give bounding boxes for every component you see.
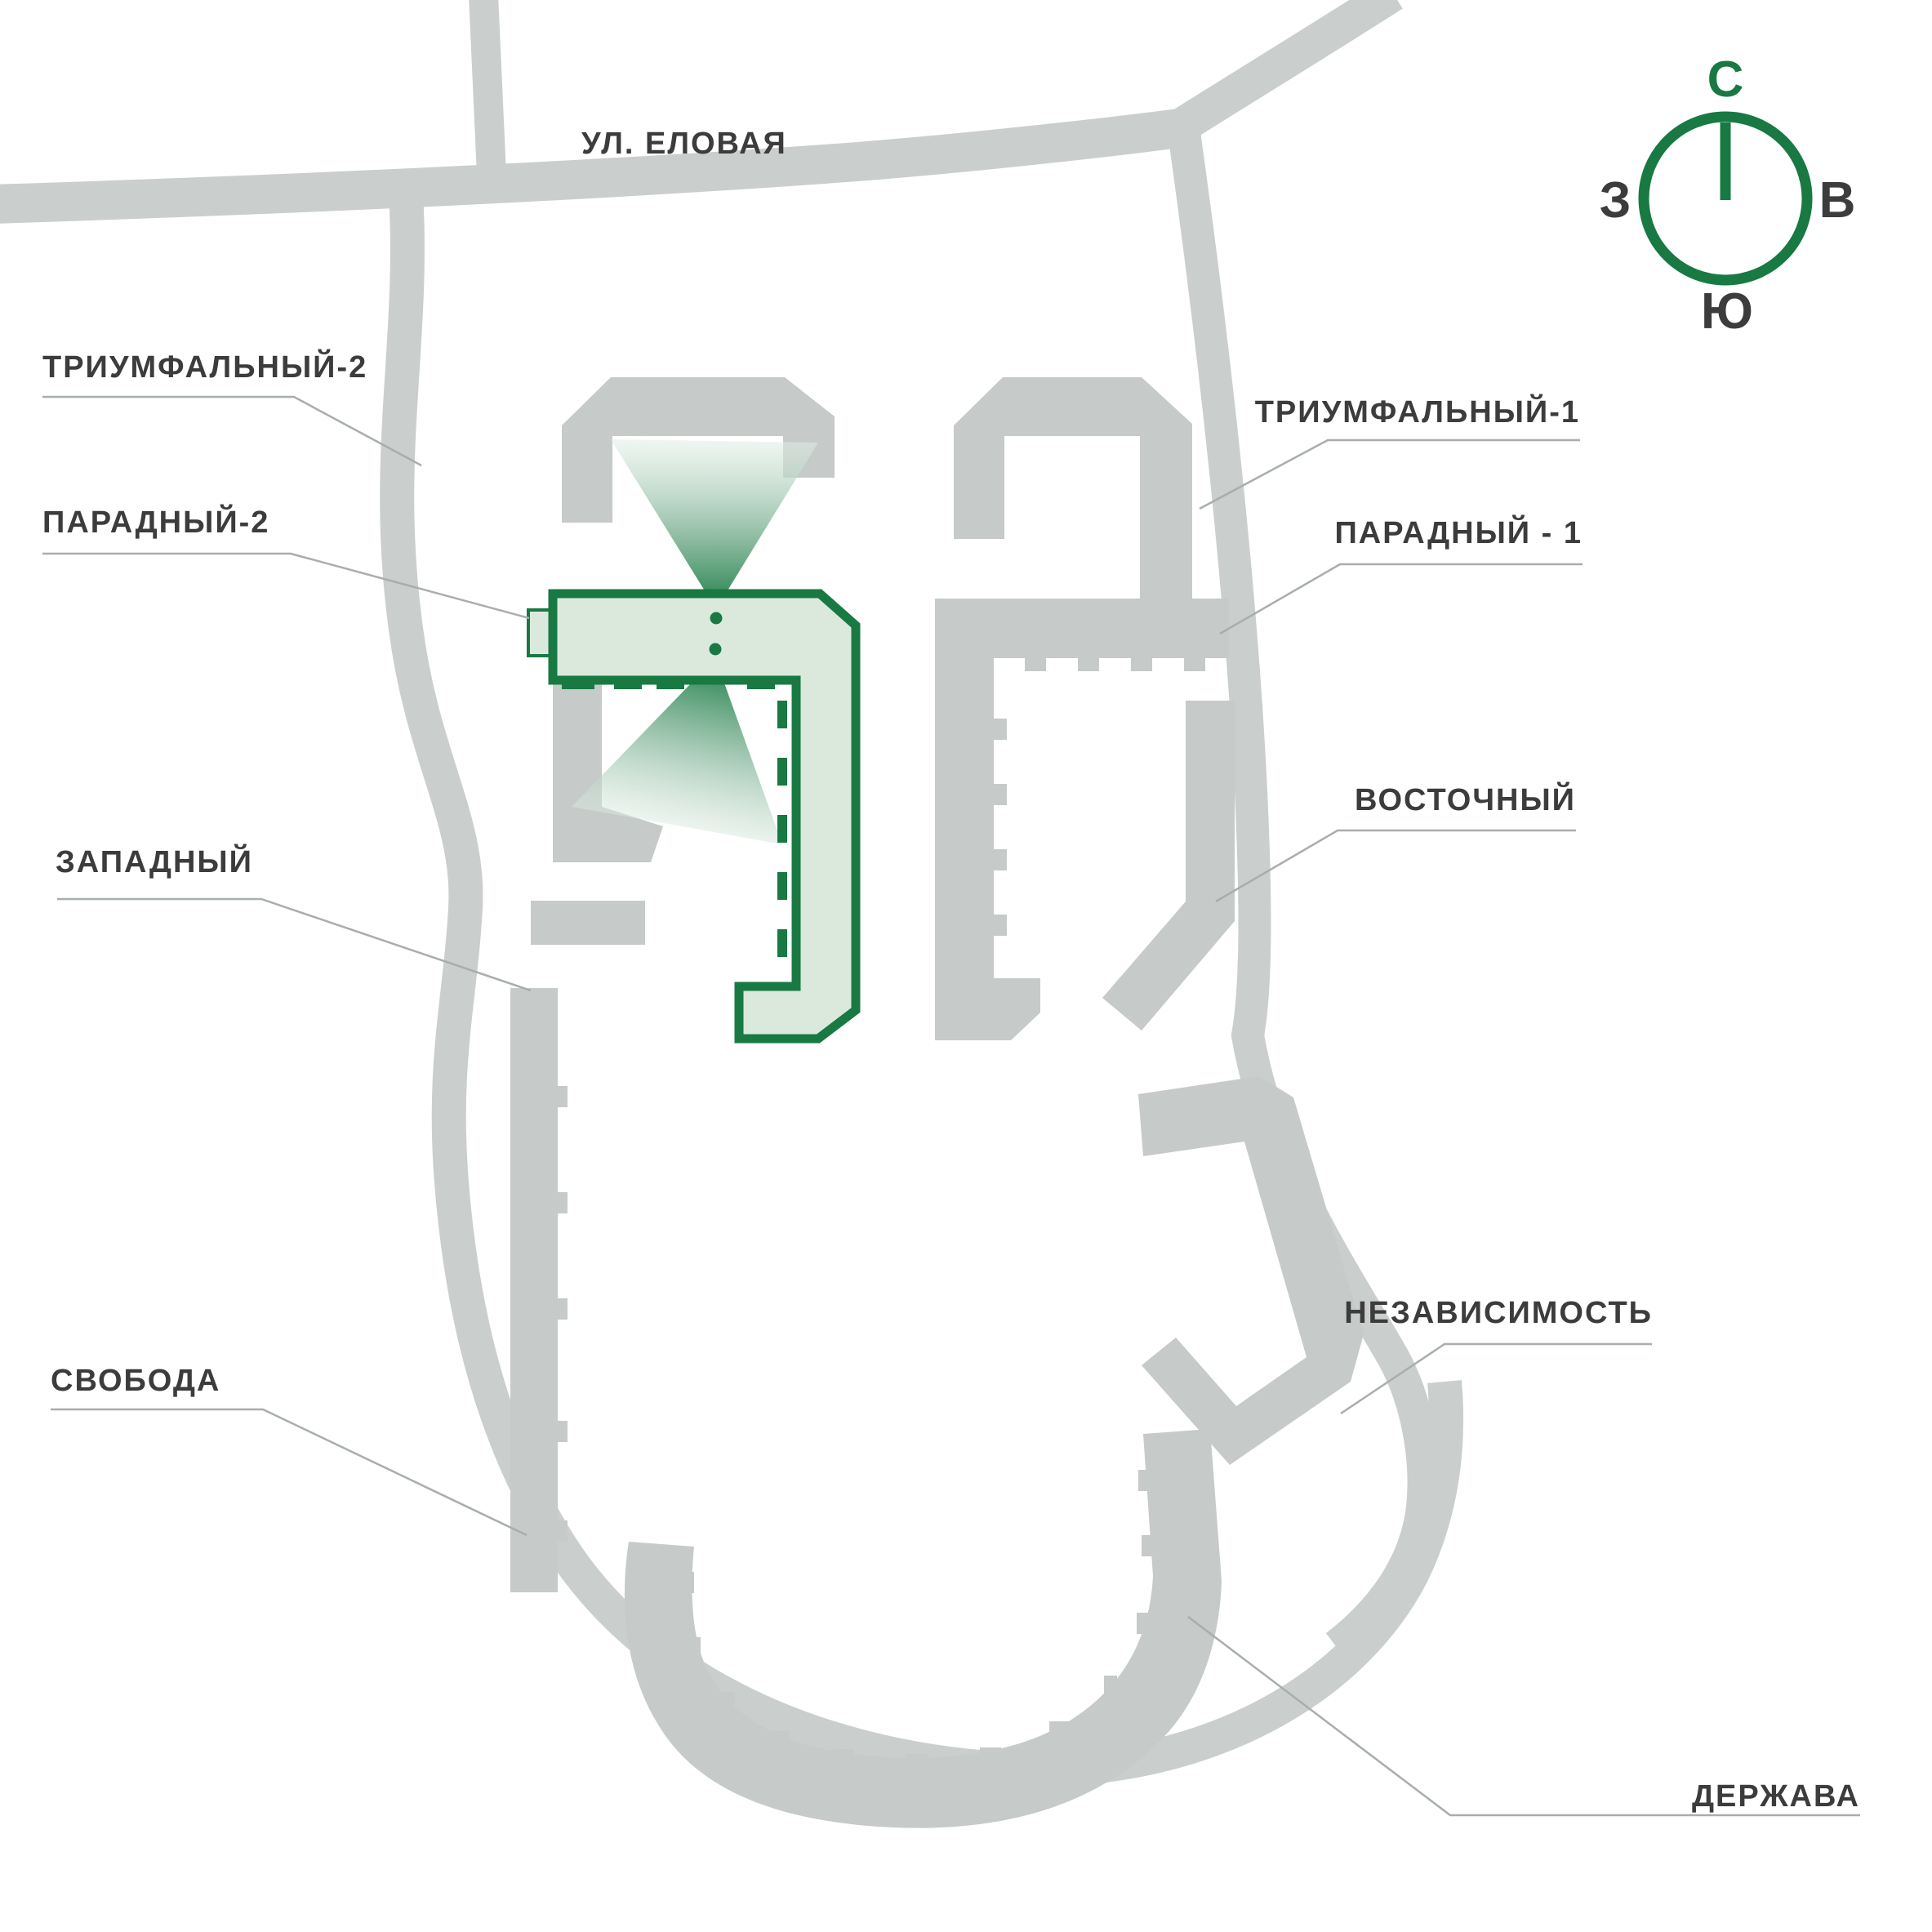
label-triumfalny-2: ТРИУМФАЛЬНЫЙ-2 xyxy=(42,348,367,385)
label-zapadny: ЗАПАДНЫЙ xyxy=(56,843,253,879)
view-cone-north xyxy=(611,439,818,609)
label-derzhava: ДЕРЖАВА xyxy=(1692,1779,1860,1814)
leader-paradny-2 xyxy=(42,554,529,618)
compass-east-label: В xyxy=(1819,172,1856,229)
compass-south-label: Ю xyxy=(1701,283,1753,340)
compass-west-label: З xyxy=(1600,172,1632,229)
leader-triumfalny-1 xyxy=(1200,440,1580,509)
entrance-dot-south xyxy=(710,643,722,656)
label-vostochny: ВОСТОЧНЫЙ xyxy=(1355,781,1576,817)
building-nezavisimost[interactable] xyxy=(1138,1076,1364,1465)
leader-svoboda xyxy=(51,1409,527,1535)
label-paradny-2: ПАРАДНЫЙ-2 xyxy=(42,503,269,540)
label-street-elovaya: УЛ. ЕЛОВАЯ xyxy=(581,127,787,161)
leader-triumfalny-2 xyxy=(42,397,421,465)
leader-paradny-1 xyxy=(1220,564,1583,634)
building-vostochny[interactable] xyxy=(1102,701,1235,1031)
label-nezavisimost: НЕЗАВИСИМОСТЬ xyxy=(1344,1296,1653,1330)
building-rect-block[interactable] xyxy=(531,901,645,945)
label-paradny-1: ПАРАДНЫЙ - 1 xyxy=(1334,514,1583,550)
entrance-dot-north xyxy=(710,612,723,625)
masterplan-map: УЛ. ЕЛОВАЯ ТРИУМФАЛЬНЫЙ-2 ПАРАДНЫЙ-2 ЗАП… xyxy=(0,0,1932,1932)
building-triumfalny-1[interactable] xyxy=(954,377,1192,602)
label-triumfalny-1: ТРИУМФАЛЬНЫЙ-1 xyxy=(1255,393,1580,430)
label-svoboda: СВОБОДА xyxy=(51,1364,220,1398)
road-northeast-branch xyxy=(1166,0,1393,136)
compass: С З В Ю xyxy=(1600,51,1856,340)
road-north-stub xyxy=(483,0,492,175)
building-svoboda[interactable] xyxy=(510,988,568,1592)
compass-north-label: С xyxy=(1707,51,1744,108)
